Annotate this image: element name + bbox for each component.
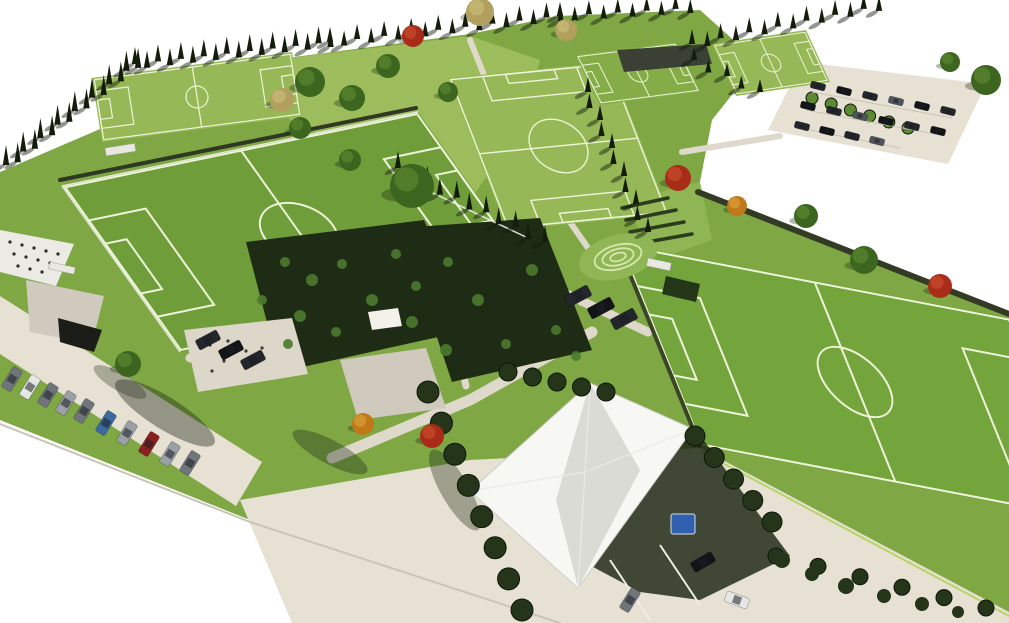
orange-tree-highlight [729, 198, 740, 209]
cypress-tree [292, 29, 298, 46]
dark-shrub [774, 552, 790, 568]
hedge-bush [852, 569, 868, 585]
roof-bush [551, 325, 561, 335]
roof-bush [501, 339, 511, 349]
green-tree-highlight [298, 69, 315, 86]
red-tree-highlight [404, 27, 416, 39]
spectator-dot [40, 270, 43, 273]
cypress-tree [54, 105, 60, 125]
roof-bush [443, 257, 453, 267]
cypress-tree [72, 91, 78, 111]
cypress-tree [746, 17, 752, 32]
green-tree-highlight [796, 206, 809, 219]
spectator-dot [32, 246, 35, 249]
hedge-bush [936, 590, 952, 606]
hedge-bush [762, 512, 782, 532]
tan-tree-highlight [272, 90, 285, 103]
cypress-tree [876, 0, 882, 11]
green-tree-highlight [118, 353, 132, 367]
dark-shrub [838, 578, 854, 594]
cypress-tree [803, 6, 809, 21]
roof-bush [411, 281, 421, 291]
roof-bush [257, 295, 267, 305]
hedge-bush [894, 579, 910, 595]
hedge-bush [498, 568, 520, 590]
cypress-tree [224, 37, 230, 54]
roof-bush [391, 249, 401, 259]
cypress-tree [543, 3, 549, 18]
spectator-dot [56, 252, 59, 255]
blue-van [671, 514, 695, 534]
hedge-bush [444, 443, 466, 465]
hedge-bush [548, 373, 566, 391]
hedge-bush [704, 448, 724, 468]
cypress-tree [643, 0, 649, 11]
green-tree-highlight [291, 119, 303, 131]
roof-bush [294, 310, 306, 322]
hedge-bush [978, 600, 994, 616]
cypress-tree [247, 34, 253, 51]
cypress-tree [327, 27, 333, 42]
cypress-tree [155, 44, 161, 61]
cypress-tree [860, 0, 866, 9]
hedge-bush [524, 368, 542, 386]
spectator-dot [20, 243, 23, 246]
spectator-dot [12, 252, 15, 255]
cypress-tree [435, 15, 441, 30]
spectator-dot [44, 249, 47, 252]
roof-bush [331, 327, 341, 337]
hedge-bush [724, 469, 744, 489]
tan-tree-highlight [469, 0, 484, 15]
cypress-tree [3, 145, 9, 165]
cypress-tree [106, 64, 112, 84]
tan-tree-highlight [557, 21, 569, 33]
cypress-tree [615, 0, 621, 12]
roof-bush [337, 259, 347, 269]
cypress-tree [315, 26, 321, 43]
aerial-render [0, 0, 1009, 623]
terrace-furniture-dot [226, 339, 229, 342]
roof-bush [472, 294, 484, 306]
roof-bush [526, 264, 538, 276]
hedge-bush [457, 474, 479, 496]
hedge-bush [471, 506, 493, 528]
green-tree-highlight [974, 67, 991, 84]
roof-bush [306, 274, 318, 286]
cypress-tree [687, 0, 693, 13]
hedge-bush [417, 381, 439, 403]
aerial-render-stage [0, 0, 1009, 623]
cypress-tree [354, 24, 360, 39]
red-tree-highlight [422, 426, 435, 439]
red-tree-highlight [930, 276, 943, 289]
cypress-tree [201, 39, 207, 56]
red-tree-highlight [668, 167, 682, 181]
spectator-dot [24, 255, 27, 258]
green-tree-highlight [342, 87, 356, 101]
terrace-furniture-dot [210, 369, 213, 372]
green-tree-highlight [853, 248, 868, 263]
cypress-tree [178, 42, 184, 59]
green-tree-highlight [440, 84, 451, 95]
hedge-bush [597, 383, 615, 401]
dark-shrub [877, 589, 891, 603]
spectator-dot [8, 240, 11, 243]
roof-bush [406, 316, 418, 328]
roof-bush [283, 339, 293, 349]
spectator-dot [36, 258, 39, 261]
roof-bush [440, 344, 452, 356]
cypress-tree [516, 6, 522, 21]
cypress-tree [775, 11, 781, 26]
roof-bush [280, 257, 290, 267]
spectator-dot [16, 264, 19, 267]
terrace-furniture-dot [260, 346, 263, 349]
green-tree-highlight [942, 54, 953, 65]
terrace-furniture-dot [244, 349, 247, 352]
hedge-bush [685, 426, 705, 446]
dark-shrub [952, 606, 964, 618]
cypress-tree [269, 31, 275, 48]
green-tree-highlight [341, 151, 353, 163]
roof-bush [571, 351, 581, 361]
hedge-bush [499, 363, 517, 381]
green-tree-highlight [394, 167, 418, 191]
hedge-bush [573, 378, 591, 396]
green-tree-highlight [378, 56, 391, 69]
spectator-dot [28, 267, 31, 270]
cypress-tree [672, 0, 678, 9]
dark-shrub [805, 567, 819, 581]
orange-tree-highlight [354, 415, 366, 427]
cypress-tree [381, 21, 387, 36]
hedge-bush [511, 599, 533, 621]
hedge-bush [484, 537, 506, 559]
hedge-bush [743, 491, 763, 511]
dark-shrub [915, 597, 929, 611]
cypress-tree [586, 0, 592, 14]
cypress-tree [557, 2, 563, 16]
cypress-tree [20, 132, 26, 152]
roof-bush [366, 294, 378, 306]
cypress-tree [37, 118, 43, 138]
cypress-tree [832, 0, 838, 15]
